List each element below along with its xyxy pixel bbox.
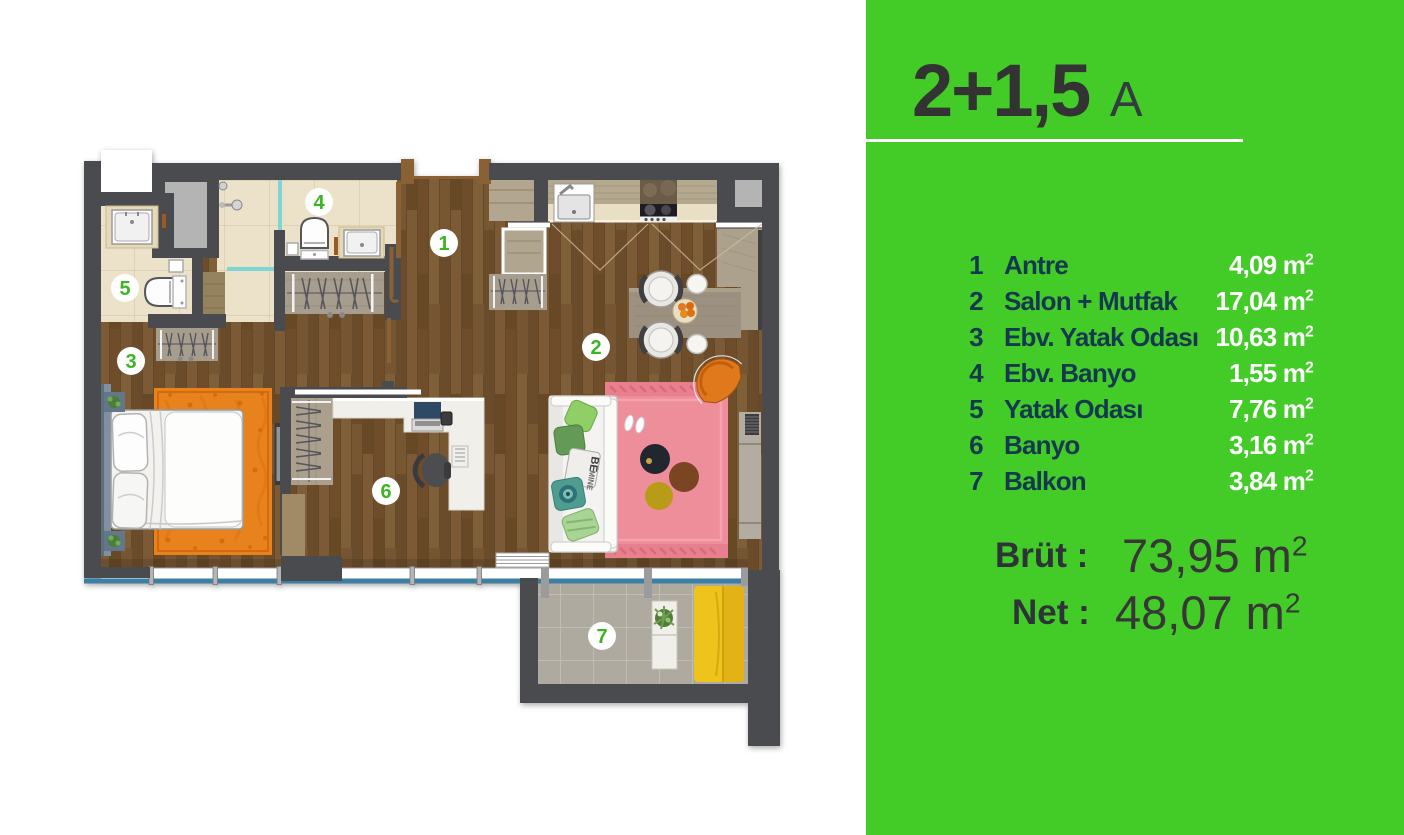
svg-text:5: 5 (119, 278, 130, 300)
svg-text:1: 1 (438, 233, 449, 255)
svg-text:7: 7 (596, 626, 607, 648)
svg-text:6: 6 (380, 481, 391, 503)
svg-text:2: 2 (590, 337, 601, 359)
svg-text:4: 4 (313, 192, 325, 214)
svg-text:3: 3 (125, 351, 136, 373)
